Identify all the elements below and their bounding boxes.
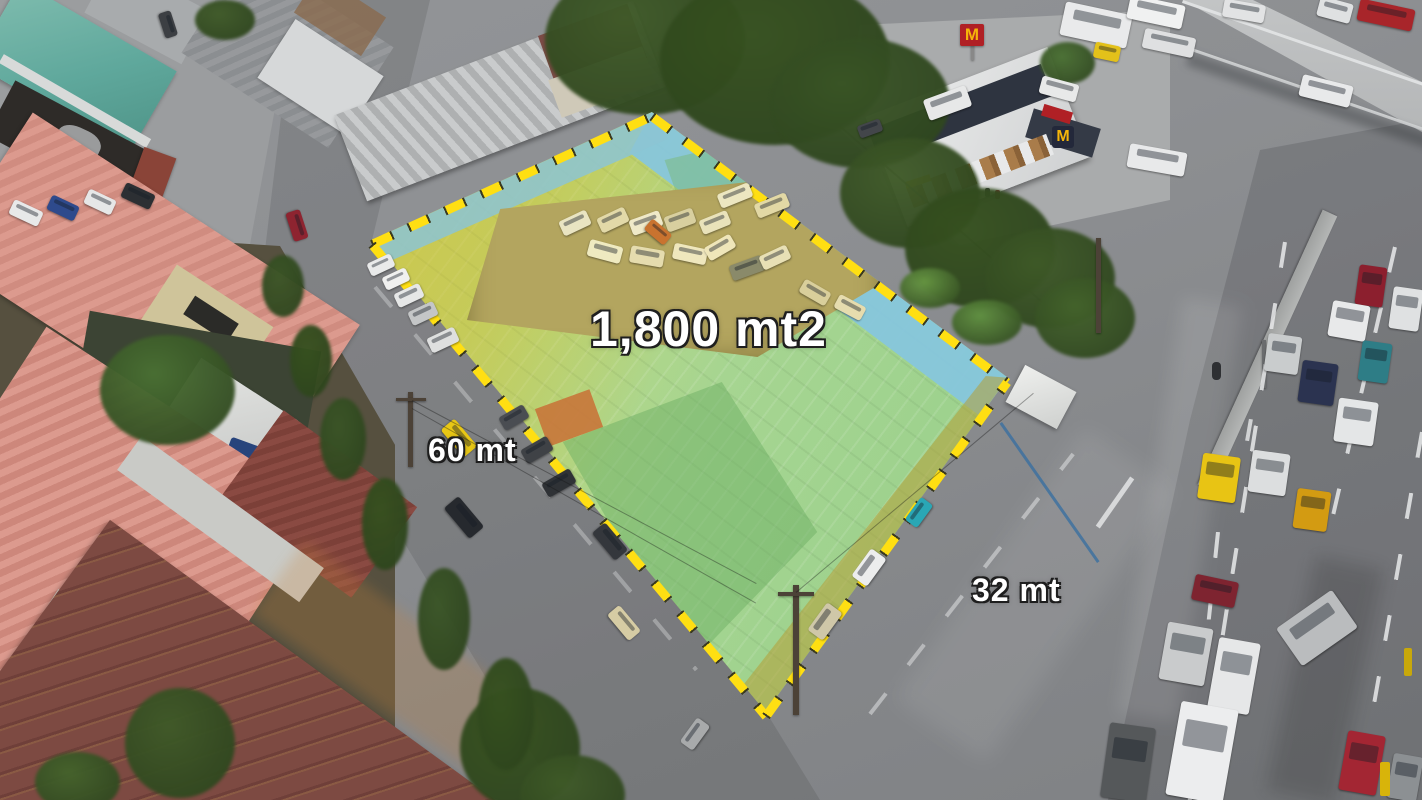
vehicle bbox=[1264, 333, 1303, 375]
vehicle bbox=[46, 194, 80, 221]
area-label: 1,800 mt2 bbox=[590, 300, 827, 358]
vehicle bbox=[857, 118, 884, 138]
vehicle bbox=[1276, 590, 1358, 667]
vehicle bbox=[1038, 75, 1079, 102]
vehicle bbox=[1327, 300, 1371, 342]
vehicle bbox=[1354, 264, 1387, 308]
vehicle bbox=[833, 294, 867, 321]
vehicle bbox=[158, 10, 178, 39]
vehicle bbox=[498, 404, 530, 431]
vehicle bbox=[1126, 0, 1186, 30]
vehicle bbox=[629, 245, 665, 268]
vehicle bbox=[807, 602, 842, 641]
vehicle bbox=[1292, 488, 1331, 532]
vehicle bbox=[1126, 143, 1187, 177]
vehicle bbox=[1357, 340, 1392, 384]
vehicle bbox=[596, 206, 630, 233]
vehicle bbox=[1297, 360, 1338, 407]
motorcyclist bbox=[1212, 362, 1221, 380]
vehicle bbox=[716, 182, 753, 209]
utility-pole bbox=[1096, 238, 1101, 333]
vehicle bbox=[83, 188, 117, 215]
vehicle bbox=[1197, 453, 1241, 504]
vehicle bbox=[1191, 574, 1239, 609]
vehicle bbox=[407, 301, 439, 326]
aerial-photo-scene: M M 1,800 mt2 60 mt bbox=[0, 0, 1422, 800]
vehicle bbox=[1222, 0, 1266, 24]
vehicle bbox=[1207, 637, 1261, 715]
vehicle bbox=[8, 199, 44, 227]
vehicle bbox=[905, 497, 934, 528]
front-dimension-label: 60 mt bbox=[428, 432, 517, 469]
utility-pole bbox=[793, 585, 799, 715]
vehicle bbox=[120, 182, 156, 210]
vehicle bbox=[426, 326, 460, 353]
vehicle bbox=[758, 244, 792, 270]
yellow-post bbox=[1404, 648, 1412, 676]
vehicle bbox=[1158, 621, 1213, 686]
vehicle bbox=[1298, 74, 1354, 108]
vehicle bbox=[1100, 722, 1156, 800]
vehicle bbox=[1165, 701, 1239, 800]
vehicle bbox=[1247, 450, 1290, 497]
vehicle bbox=[672, 243, 709, 266]
vehicle bbox=[1386, 753, 1422, 800]
vehicle bbox=[703, 234, 736, 262]
vehicle bbox=[558, 209, 592, 236]
vehicle bbox=[1388, 286, 1422, 332]
yellow-post bbox=[1380, 762, 1390, 796]
vehicle bbox=[1141, 28, 1196, 58]
vehicle bbox=[1333, 397, 1379, 446]
vehicles-layer bbox=[0, 0, 1422, 800]
vehicle bbox=[1356, 0, 1415, 32]
vehicle bbox=[1338, 730, 1386, 796]
vehicle bbox=[663, 207, 697, 232]
utility-pole bbox=[408, 392, 413, 467]
vehicle bbox=[607, 605, 641, 641]
vehicle bbox=[698, 210, 731, 235]
vehicle bbox=[753, 192, 790, 219]
vehicle bbox=[923, 85, 973, 121]
vehicle bbox=[851, 548, 886, 587]
vehicle bbox=[586, 239, 623, 264]
vehicle bbox=[680, 717, 711, 751]
side-dimension-label: 32 mt bbox=[972, 572, 1061, 609]
vehicle bbox=[1316, 0, 1354, 24]
vehicle bbox=[444, 496, 484, 539]
vehicle bbox=[285, 209, 309, 242]
vehicle bbox=[393, 283, 425, 308]
